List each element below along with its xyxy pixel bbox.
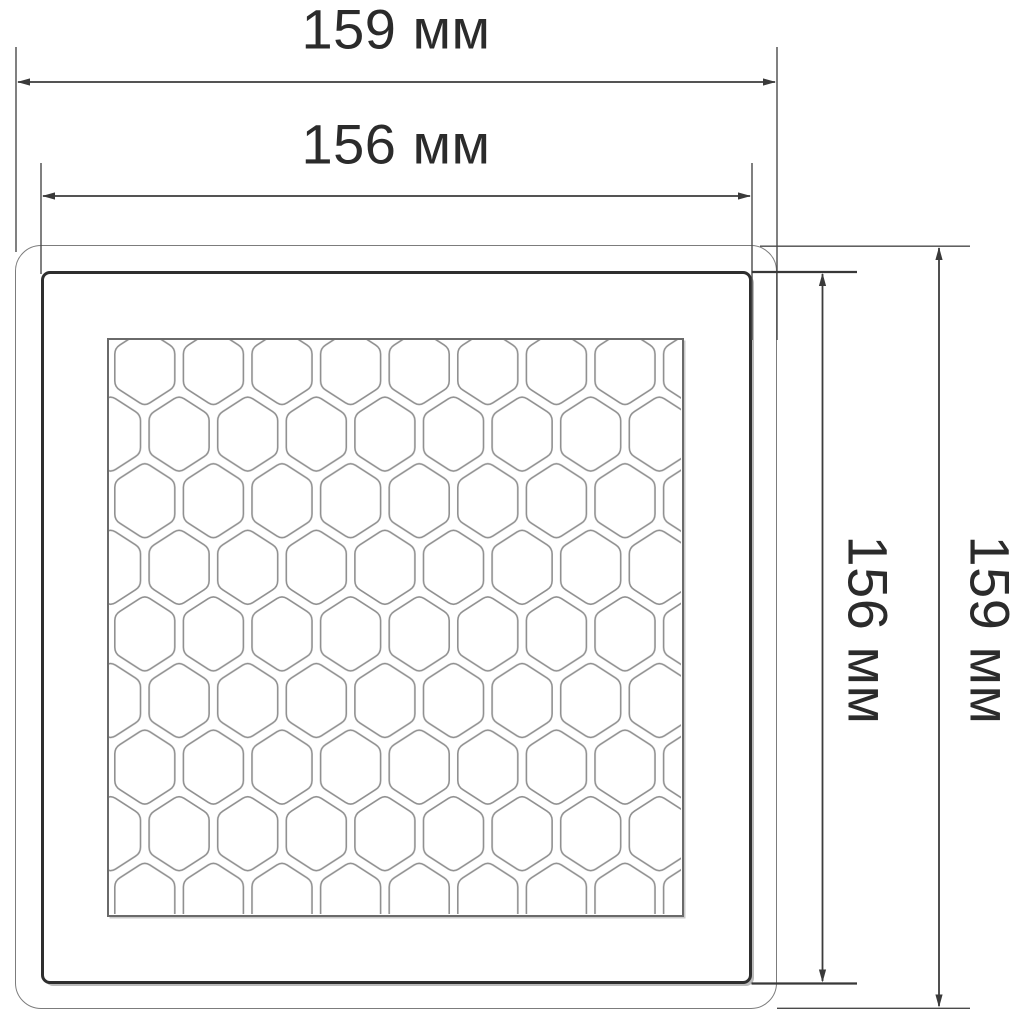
arrowhead-icon	[935, 995, 942, 1008]
dim-label-outer-width: 159 мм	[302, 0, 491, 62]
arrowhead-icon	[17, 78, 30, 85]
arrowhead-icon	[42, 192, 55, 199]
arrowhead-icon	[935, 247, 942, 260]
dim-label-inner-height: 156 мм	[836, 536, 901, 725]
dim-label-outer-height: 159 мм	[958, 536, 1023, 725]
dim-label-inner-width: 156 мм	[302, 112, 491, 177]
arrowhead-icon	[738, 192, 751, 199]
arrowhead-icon	[763, 78, 776, 85]
arrowhead-icon	[819, 273, 826, 286]
technical-drawing: 159 мм 156 мм 156 мм 159 мм	[0, 0, 1024, 1024]
arrowhead-icon	[819, 970, 826, 983]
honeycomb-pattern	[109, 340, 681, 914]
honeycomb-panel	[107, 338, 684, 917]
